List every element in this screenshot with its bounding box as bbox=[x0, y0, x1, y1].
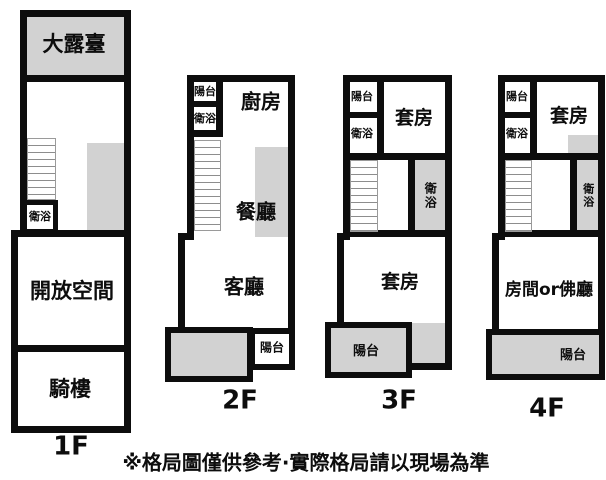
stairs-2f bbox=[194, 140, 221, 231]
balcony-4f bbox=[486, 329, 605, 380]
label-2f-balcony-bottom: 陽台 bbox=[260, 342, 284, 355]
wall-segment bbox=[408, 160, 415, 237]
wall-segment bbox=[505, 153, 598, 160]
wall-segment bbox=[187, 130, 223, 137]
wall-segment bbox=[194, 101, 216, 107]
label-2f-kitchen: 廚房 bbox=[241, 92, 281, 113]
disclaimer-caption: ※格局圖僅供參考·實際格局請以現場為準 bbox=[122, 447, 489, 476]
wall-segment bbox=[343, 75, 350, 240]
wall-segment bbox=[343, 75, 452, 82]
gray-area-1f bbox=[87, 143, 124, 232]
label-2f-dining: 餐廳 bbox=[236, 202, 276, 223]
wall-segment bbox=[445, 75, 452, 370]
gray-area-2f-dining bbox=[255, 147, 288, 237]
wall-segment bbox=[288, 75, 295, 370]
wall-segment bbox=[492, 233, 499, 329]
wall-segment bbox=[350, 153, 445, 160]
floor-label-3f: 3F bbox=[381, 387, 417, 414]
label-2f-living: 客廳 bbox=[224, 277, 264, 298]
wall-segment bbox=[498, 75, 505, 240]
label-4f-main-room: 房間or佛廳 bbox=[505, 282, 593, 300]
label-1f-open-space: 開放空間 bbox=[30, 280, 114, 302]
label-4f-bath-mid: 衛浴 bbox=[582, 183, 594, 209]
wall-segment bbox=[498, 75, 605, 82]
label-1f-terrace: 大露臺 bbox=[43, 33, 106, 55]
stairs-3f bbox=[350, 160, 378, 232]
wall-segment bbox=[530, 82, 537, 153]
floorplan-diagram: 大露臺 衛浴 開放空間 騎樓 1F 陽台 衛浴 廚房 餐廳 客廳 陽台 2F bbox=[0, 0, 606, 480]
label-3f-balcony-bottom: 陽台 bbox=[353, 345, 379, 359]
floor-label-1f: 1F bbox=[53, 433, 89, 460]
label-4f-bath-top: 衛浴 bbox=[506, 128, 528, 140]
label-3f-suite-main: 套房 bbox=[381, 273, 419, 293]
wall-segment bbox=[178, 233, 185, 333]
wall-segment bbox=[377, 82, 384, 153]
label-4f-balcony-bottom: 陽台 bbox=[560, 349, 586, 363]
wall-segment bbox=[11, 345, 131, 352]
label-2f-bath-top: 衛浴 bbox=[194, 113, 216, 125]
wall-segment bbox=[505, 112, 530, 118]
wall-segment bbox=[570, 160, 577, 237]
label-3f-bath-mid: 衛浴 bbox=[424, 182, 437, 210]
label-3f-balcony-top: 陽台 bbox=[351, 91, 373, 103]
wall-segment bbox=[187, 75, 295, 82]
label-1f-bath: 衛浴 bbox=[29, 211, 51, 223]
wall-segment bbox=[598, 75, 605, 335]
stairs-4f bbox=[505, 160, 532, 232]
label-4f-balcony-top: 陽台 bbox=[506, 91, 528, 103]
floor-label-4f: 4F bbox=[529, 395, 565, 422]
label-2f-balcony-top: 陽台 bbox=[194, 86, 216, 98]
wall-segment bbox=[216, 82, 223, 137]
label-3f-bath-top: 衛浴 bbox=[351, 128, 373, 140]
wall-segment bbox=[124, 10, 131, 433]
wall-segment bbox=[337, 233, 344, 328]
stairs-1f bbox=[27, 138, 56, 200]
wall-segment bbox=[187, 75, 194, 240]
floor-label-2f: 2F bbox=[222, 387, 258, 414]
label-1f-arcade: 騎樓 bbox=[49, 378, 91, 400]
wall-segment bbox=[20, 10, 131, 17]
label-3f-suite-top: 套房 bbox=[395, 109, 433, 129]
balcony-ledge-2f bbox=[165, 327, 253, 382]
gray-area-4f-suite-patch bbox=[568, 135, 598, 153]
wall-segment bbox=[350, 112, 377, 118]
label-4f-suite-top: 套房 bbox=[550, 107, 588, 127]
wall-segment bbox=[20, 75, 131, 82]
wall-segment bbox=[11, 230, 18, 433]
